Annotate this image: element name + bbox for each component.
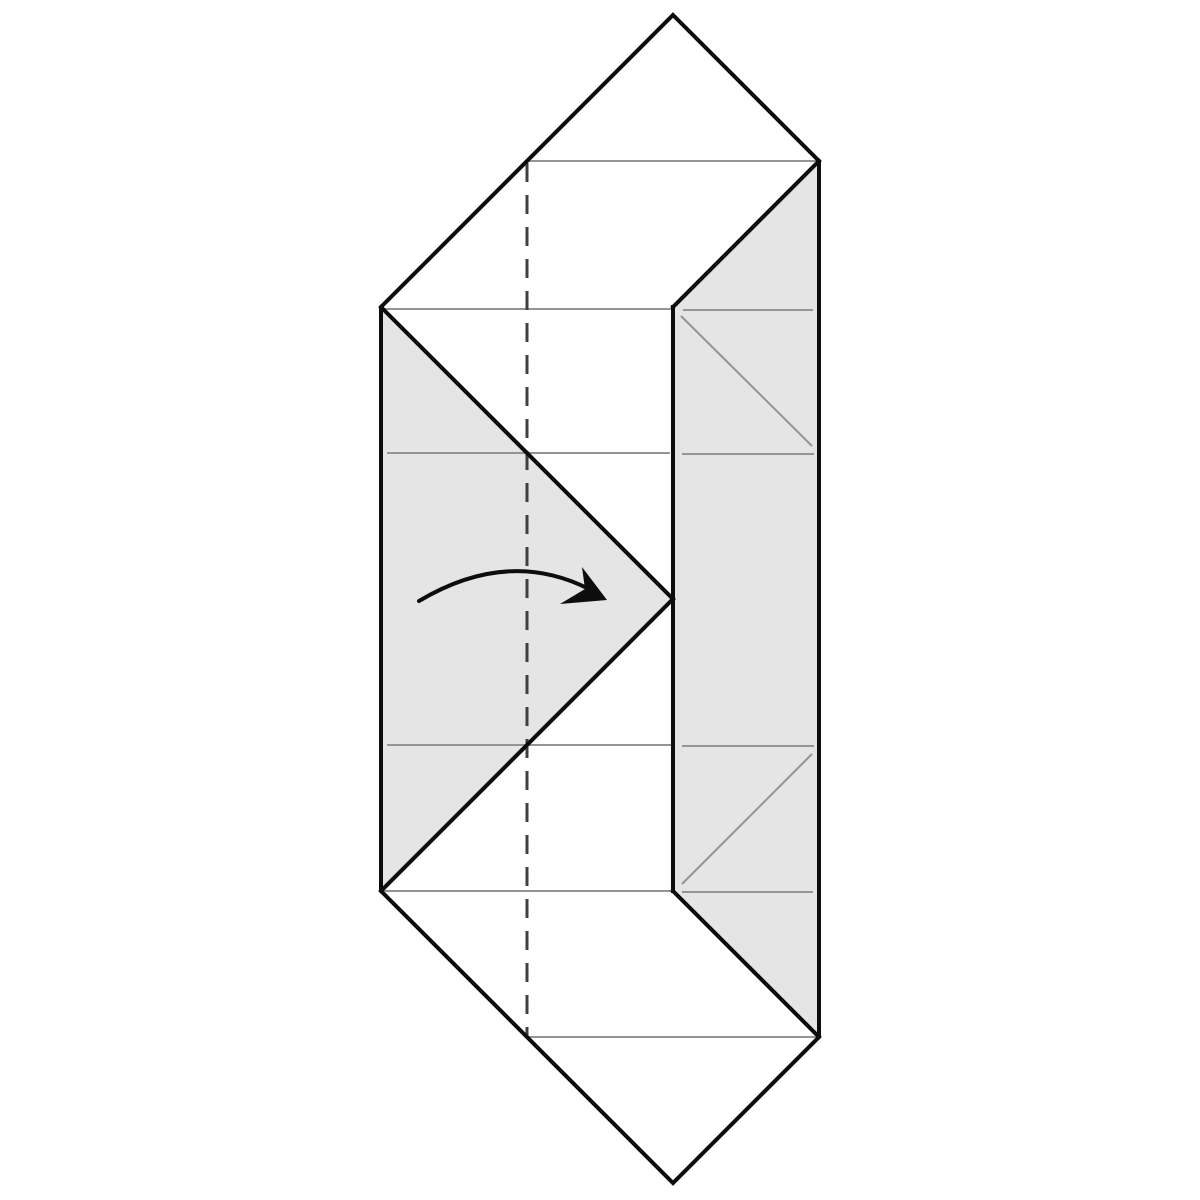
right-panel-shade	[673, 161, 819, 1037]
origami-diagram	[0, 0, 1200, 1200]
origami-svg	[0, 0, 1200, 1200]
